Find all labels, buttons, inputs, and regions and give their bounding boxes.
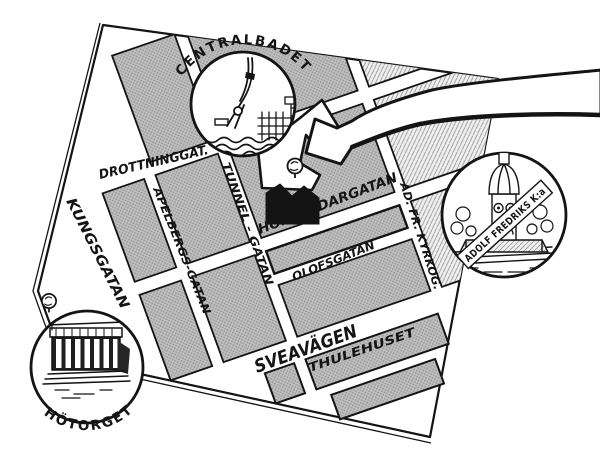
map-canvas: DROTTNINGGAT. KUNGSGATAN APELBERGS-GATAN… [0,0,600,461]
map-page: DROTTNINGGAT. KUNGSGATAN APELBERGS-GATAN… [0,0,600,461]
marker-9a-label: 9A [274,197,310,225]
